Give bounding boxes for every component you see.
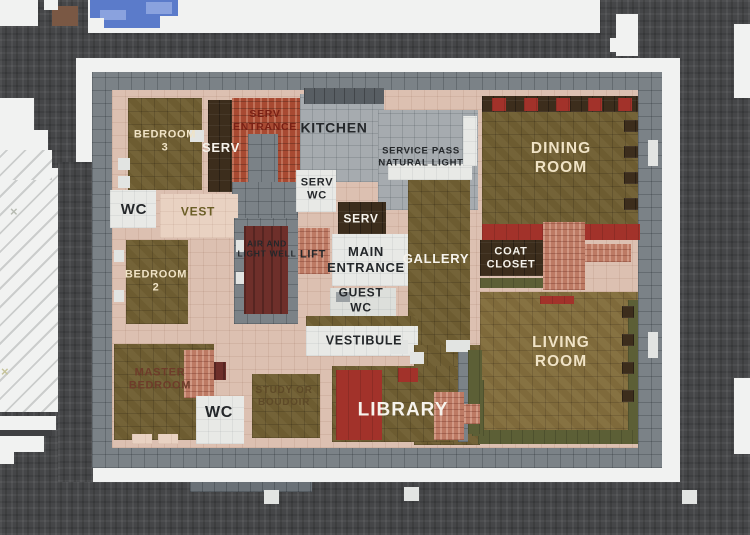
living-wall-notch (622, 306, 634, 318)
west-roof-stairs-top (0, 150, 52, 180)
label-serv-center: SERV (343, 212, 378, 227)
air-well-window (236, 272, 244, 284)
serv-entrance-stair (248, 134, 278, 184)
dining-wall-notch (624, 120, 638, 132)
master-hearth (214, 362, 226, 380)
dining-wall-notch (624, 172, 638, 184)
window-sill (114, 290, 124, 302)
living-wall-notch (622, 362, 634, 374)
service-pass-pillar (463, 116, 477, 166)
east-roof-strip (734, 24, 750, 98)
label-kitchen: KITCHEN (300, 119, 367, 136)
label-dining-room: DINING ROOM (531, 140, 591, 178)
neighbor-roof-block (0, 0, 38, 26)
living-room-red-trim (540, 296, 574, 304)
dining-chair (524, 98, 538, 111)
dining-wall-notch (624, 146, 638, 158)
minecraft-floorplan-scene: × × (0, 0, 750, 535)
label-study: STUDY OR BOUDOIR (255, 385, 312, 409)
label-coat-closet: COAT CLOSET (487, 246, 536, 273)
dining-chair (588, 98, 602, 111)
bed-block (158, 434, 178, 444)
library-red-patch (398, 368, 418, 382)
dining-wall-notch (624, 198, 638, 210)
label-air-light-well: AIR AND LIGHT WELL (238, 239, 297, 260)
kitchen-counters (304, 88, 384, 104)
central-fireplace (543, 222, 585, 290)
dining-chair (618, 98, 632, 111)
map-cross-lower: × (1, 364, 9, 379)
bed-block (132, 434, 152, 444)
west-roof-chip (0, 452, 14, 464)
label-vest: VEST (181, 205, 215, 220)
street-white-block (682, 490, 697, 504)
furniture-block (446, 340, 470, 352)
label-serv-entrance: SERV ENTRANCE (233, 108, 297, 134)
pool-deck-chip (90, 18, 104, 28)
dining-chair (556, 98, 570, 111)
street-white-block (404, 487, 419, 501)
label-vestibule: VESTIBULE (326, 333, 402, 348)
street-lamp-block (610, 38, 624, 52)
label-serv-wc: SERV WC (301, 177, 334, 204)
window-sill (118, 176, 130, 188)
label-wc-north: WC (121, 201, 147, 219)
dining-chair (492, 98, 506, 111)
west-roof-lower (0, 416, 56, 430)
window-sill (114, 250, 124, 262)
kitchen-floor (300, 94, 384, 182)
neighbor-roof-chip (44, 0, 58, 10)
label-service-pass: SERVICE PASS NATURAL LIGHT (378, 145, 463, 168)
street-white-block (264, 490, 279, 504)
label-master-bedroom: MASTER BEDROOM (129, 367, 191, 394)
furniture-block (410, 352, 424, 364)
map-cross-upper: × (10, 204, 18, 219)
label-living-room: LIVING ROOM (532, 334, 590, 372)
living-wall-notch (622, 390, 634, 402)
label-library: LIBRARY (358, 398, 449, 421)
label-gallery: GALLERY (403, 251, 470, 267)
bay-window (648, 140, 658, 166)
street-left-gap (58, 162, 93, 482)
label-bedroom-3: BEDROOM 3 (134, 129, 196, 156)
window-sill (118, 158, 130, 170)
label-serv-west: SERV (202, 140, 240, 156)
east-roof-strip-lower (734, 378, 750, 454)
label-bedroom-2: BEDROOM 2 (125, 269, 187, 296)
label-main-entrance: MAIN ENTRANCE (327, 244, 405, 276)
living-wall-notch (622, 334, 634, 346)
pool-deck-chip (160, 16, 180, 28)
label-lift: LIFT (300, 248, 326, 261)
bay-window (648, 332, 658, 358)
library-fireplace-arm (464, 404, 480, 424)
planter-strip-south (478, 430, 638, 444)
pool-water-light (146, 2, 172, 14)
label-wc-south: WC (205, 403, 233, 423)
central-fireplace-arm (585, 244, 631, 262)
label-guest-wc: GUEST WC (339, 285, 384, 314)
west-roof-lower (0, 436, 44, 452)
